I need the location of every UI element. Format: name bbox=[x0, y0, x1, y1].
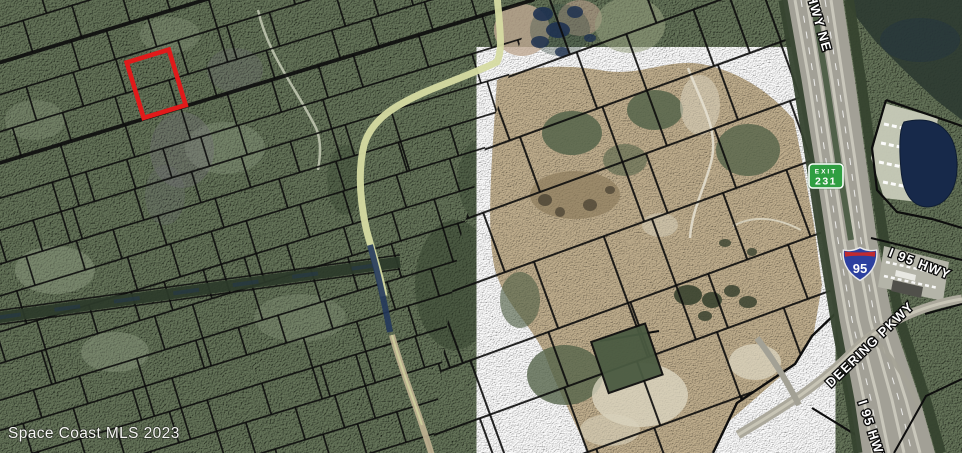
exit-231-sign: EXIT 231 bbox=[808, 163, 844, 189]
exit-sign-number: 231 bbox=[815, 176, 837, 188]
shield-route-number: 95 bbox=[853, 261, 867, 276]
wetland-water bbox=[880, 18, 960, 62]
pond bbox=[900, 120, 957, 207]
exit-sign-label: EXIT bbox=[815, 169, 837, 176]
aerial-map-canvas[interactable]: EXIT 231 95 HWY NE I 95 HWY DEERING PKWY… bbox=[0, 0, 962, 453]
mls-aerial-parcel-map[interactable]: EXIT 231 95 HWY NE I 95 HWY DEERING PKWY… bbox=[0, 0, 962, 453]
mls-watermark: Space Coast MLS 2023 bbox=[8, 425, 180, 442]
